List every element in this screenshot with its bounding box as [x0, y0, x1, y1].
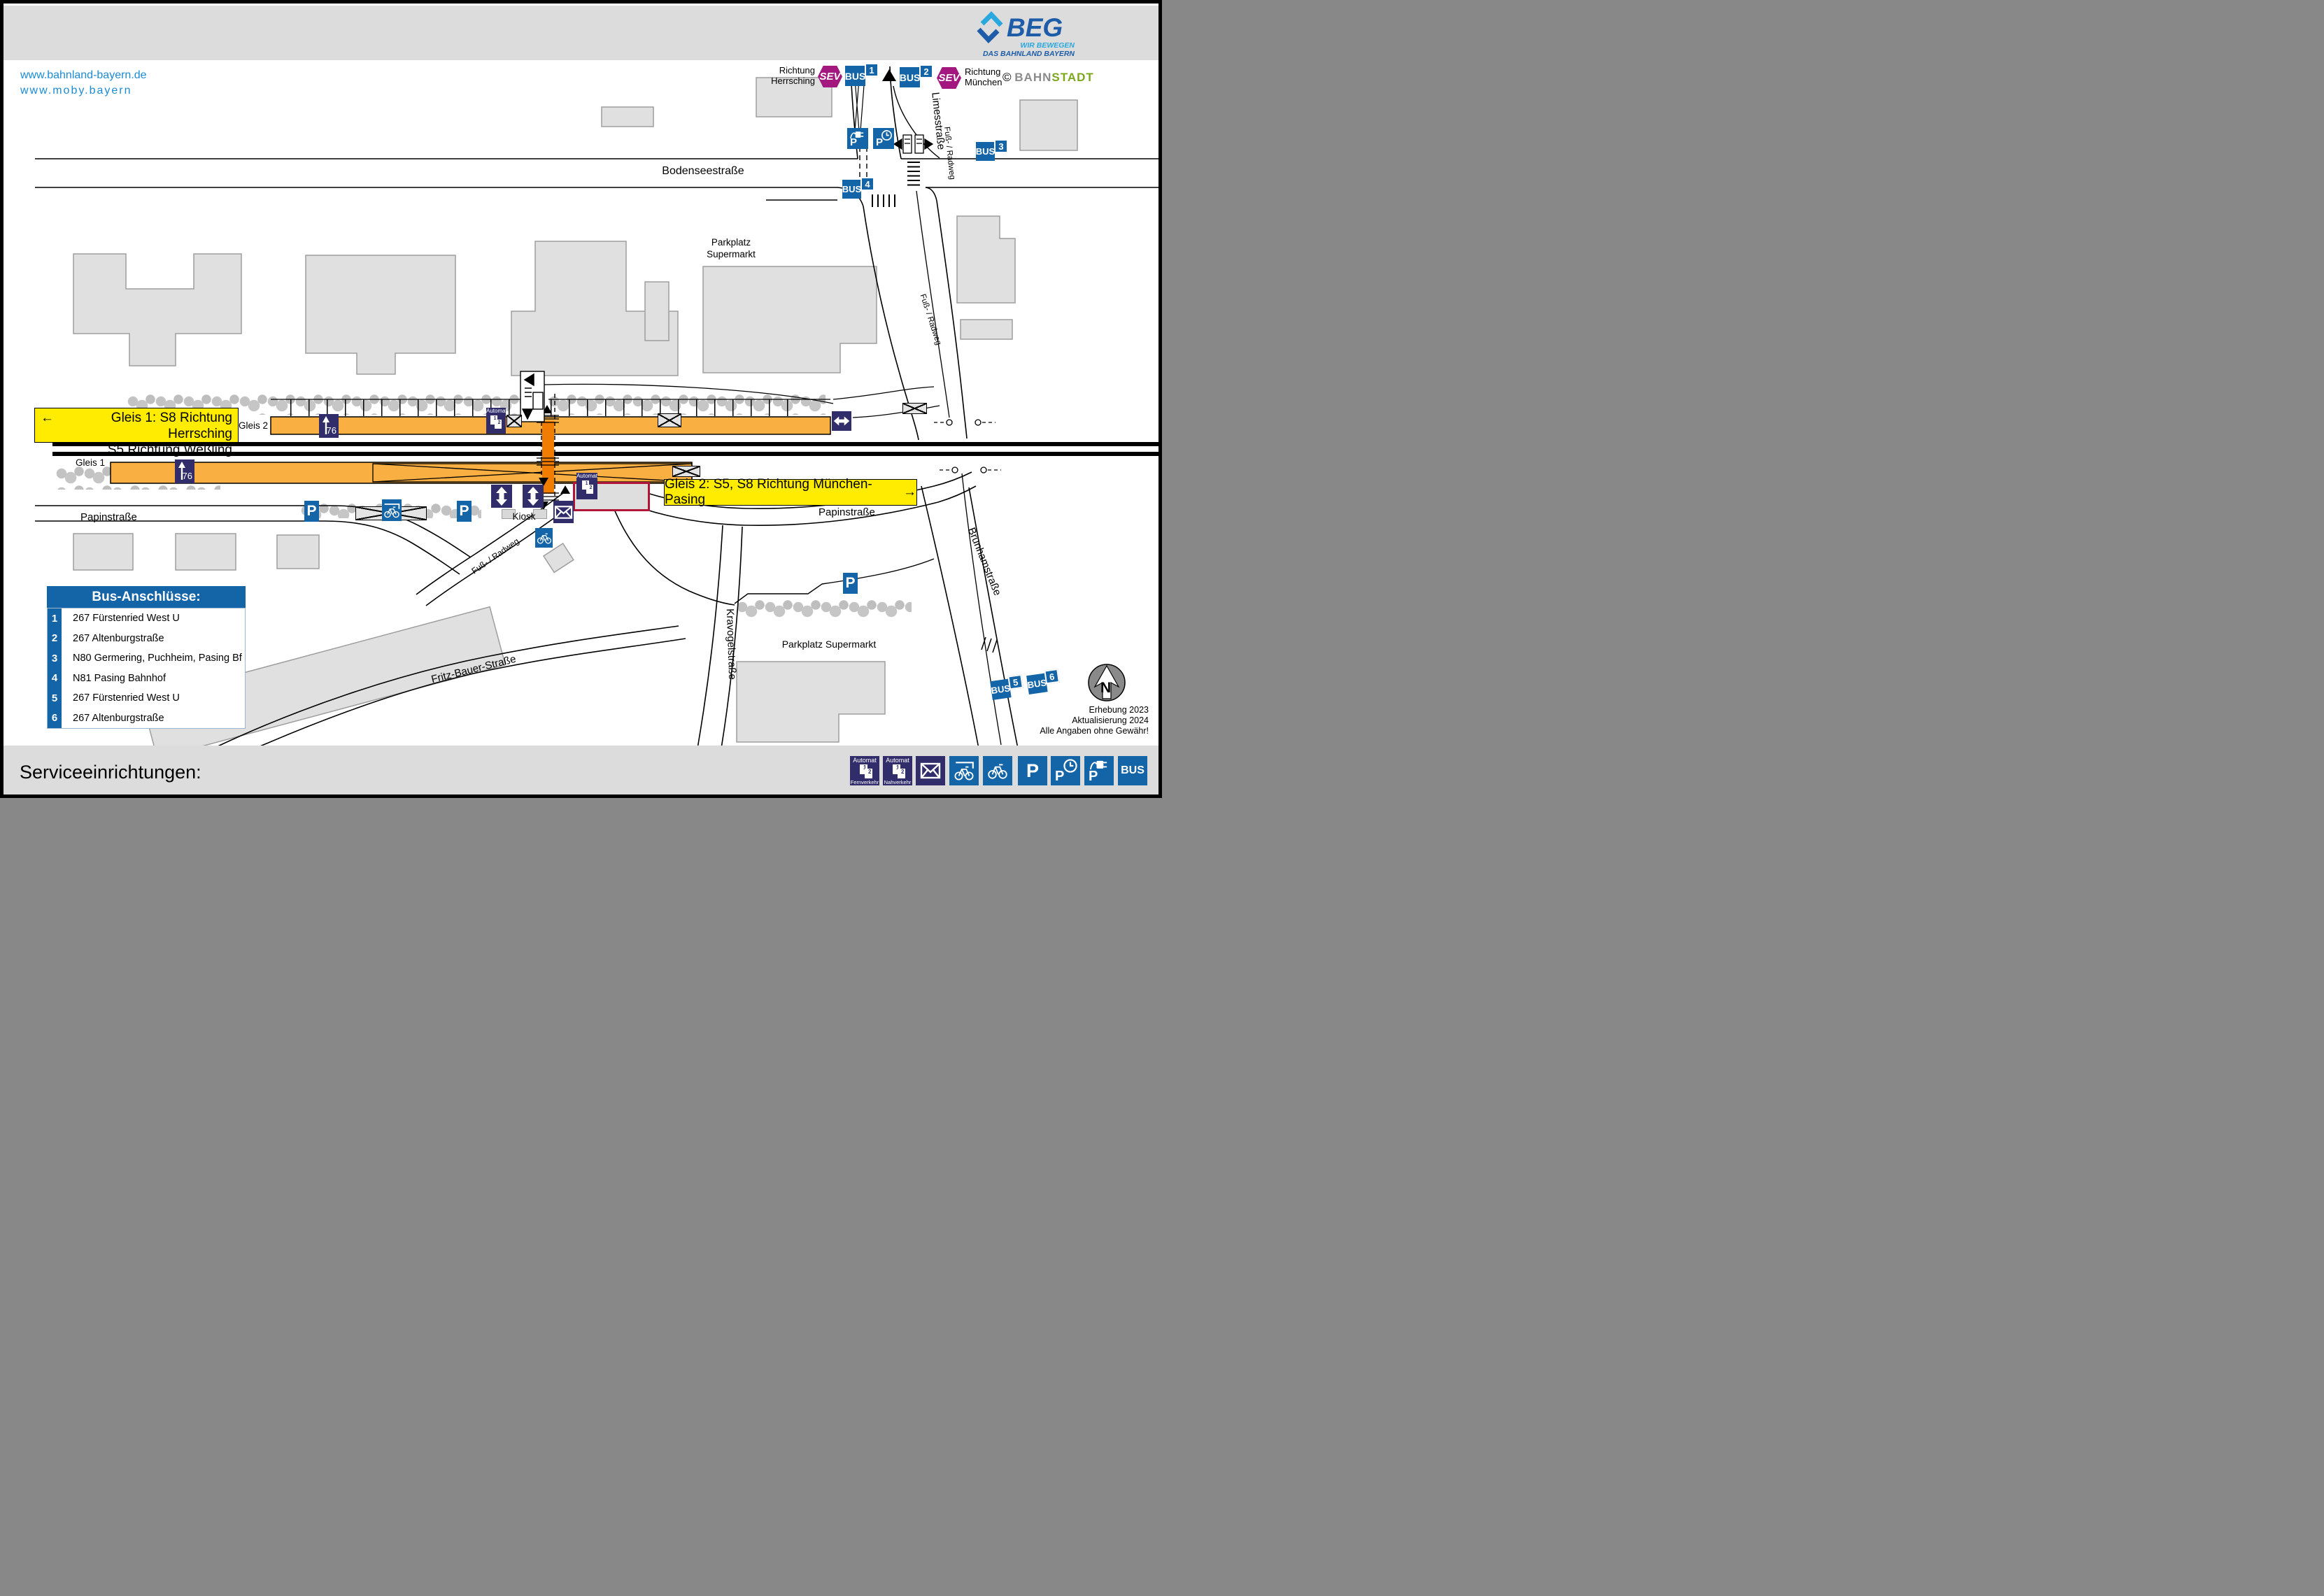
entrance-triangle-kiosk	[560, 485, 570, 494]
service-icon-bike-parking	[983, 756, 1012, 785]
bus-stop-5-number: 5	[1007, 674, 1023, 690]
bus-stop-1-number: 1	[865, 63, 879, 77]
bus-stop-4: BUS 4	[842, 180, 873, 201]
beg-logo-text: BEG	[1007, 13, 1063, 43]
legend-row-5: 5267 Fürstenried West U	[48, 688, 245, 708]
beg-tagline-1: WIR BEWEGEN	[1020, 41, 1075, 50]
arrow-left-icon: ←	[41, 410, 54, 426]
label-parkplatz-supermarkt-top: ParkplatzSupermarkt	[696, 236, 766, 260]
ramp-both-directions-icon	[832, 411, 851, 431]
bus-stop-6: BUS 6	[1026, 671, 1060, 697]
bus-connections-legend: Bus-Anschlüsse: 1267 Fürstenried West U …	[47, 586, 246, 729]
legend-row-1: 1267 Fürstenried West U	[48, 608, 245, 629]
label-parkplatz-supermarkt-bottom: Parkplatz Supermarkt	[759, 639, 899, 650]
bus-stop-4-number: 4	[860, 177, 874, 191]
shelter-gleis1-east-icon	[672, 466, 700, 477]
direction-herrsching-label: RichtungHerrsching	[751, 65, 815, 86]
direction-muenchen-label: RichtungMünchen	[965, 66, 1002, 87]
street-label-bodenseestrasse: Bodenseestraße	[647, 165, 759, 178]
parking-time-limit-icon-map: P	[873, 128, 894, 149]
legend-row-2: 2267 Altenburgstraße	[48, 629, 245, 649]
elevator-icon-west	[491, 485, 512, 508]
elevator-icon-east	[523, 485, 544, 508]
service-icon-parking: P	[1018, 756, 1047, 785]
footer-title: Serviceeinrichtungen:	[20, 762, 201, 783]
bus-stop-2: BUS 2	[900, 67, 933, 89]
platform-height-marker-gleis2: 76	[319, 414, 339, 438]
street-label-kravogelstrasse: Kravogelstraße	[724, 608, 739, 680]
legend-row-6: 6267 Altenburgstraße	[48, 708, 245, 729]
beg-logo-icon	[975, 10, 1005, 44]
bus-stop-3: BUS 3	[976, 142, 1007, 163]
north-compass-icon: N	[1087, 662, 1126, 707]
bus-stop-6-number: 6	[1044, 669, 1060, 685]
bus-stop-1: BUS 1	[845, 66, 879, 87]
arrow-right-icon: →	[903, 485, 916, 500]
covered-bike-parking-icon	[382, 499, 402, 521]
parking-charging-icon-map: P	[847, 128, 868, 149]
ticket-machine-gleis1-icon: Automat 1 2	[576, 473, 597, 499]
link-moby-bayern: www.moby.bayern	[20, 85, 132, 97]
service-icon-automat-nahverkehr: Automat 1 2 Nahverkehr	[883, 756, 912, 785]
survey-year: Erhebung 2023	[1089, 705, 1149, 715]
shelter-gleis2-west-icon	[506, 415, 522, 427]
service-icon-parking-time-limit: P	[1051, 756, 1080, 785]
label-gleis-1: Gleis 1	[52, 457, 105, 468]
parking-sign-west-2: P	[457, 501, 472, 522]
entrance-triangle-icon	[882, 69, 896, 81]
legend-row-3: 3N80 Germering, Puchheim, Pasing Bf	[48, 648, 245, 669]
bike-parking-icon	[535, 528, 553, 548]
bus-stop-2-number: 2	[919, 64, 933, 78]
update-year: Aktualisierung 2024	[1072, 715, 1149, 725]
ticket-machine-gleis2-icon: Automat 1 2	[486, 408, 506, 434]
service-icon-automat-fernverkehr: Automat 1 2 Fernverkehr	[850, 756, 879, 785]
bus-stop-3-number: 3	[994, 139, 1008, 153]
parking-sign-supermarkt: P	[843, 573, 858, 594]
footbridge-north	[520, 371, 544, 422]
service-icon-covered-bike-parking	[949, 756, 979, 785]
parking-sign-west-1: P	[304, 501, 319, 522]
legend-title: Bus-Anschlüsse:	[47, 586, 246, 608]
link-bahnland-bayern: www.bahnland-bayern.de	[20, 69, 147, 82]
legend-row-4: 4N81 Pasing Bahnhof	[48, 669, 245, 689]
street-label-papinstrasse-west: Papinstraße	[80, 511, 137, 523]
platform-height-marker-gleis1: 76	[175, 459, 194, 483]
bus-stop-5: BUS 5	[990, 677, 1023, 702]
disclaimer: Alle Angaben ohne Gewähr!	[1040, 726, 1149, 736]
street-label-papinstrasse-east: Papinstraße	[819, 506, 875, 518]
copyright-icon: ©	[1002, 71, 1012, 84]
beg-tagline-2: DAS BAHNLAND BAYERN	[983, 50, 1075, 58]
label-kiosk: Kiosk	[503, 511, 545, 522]
service-icon-parking-charging: P	[1084, 756, 1114, 785]
sign-gleis2-directions: Gleis 2: S5, S8 Richtung München-Pasing …	[664, 479, 917, 506]
bahnstadt-credit: © BAHNSTADT	[1002, 71, 1094, 85]
sign-gleis1-directions: ← Gleis 1: S8 Richtung HerrschingS5 Rich…	[34, 408, 239, 443]
shelter-northeast-icon	[902, 403, 927, 414]
shelter-gleis2-east-icon	[658, 413, 681, 427]
mailbox-icon	[553, 501, 574, 523]
service-icon-bus: BUS	[1118, 756, 1147, 785]
station-map-poster: München-Neuaubing BEG WIR BEWEGEN DAS BA…	[0, 0, 1162, 798]
service-icon-mailbox	[916, 756, 945, 785]
